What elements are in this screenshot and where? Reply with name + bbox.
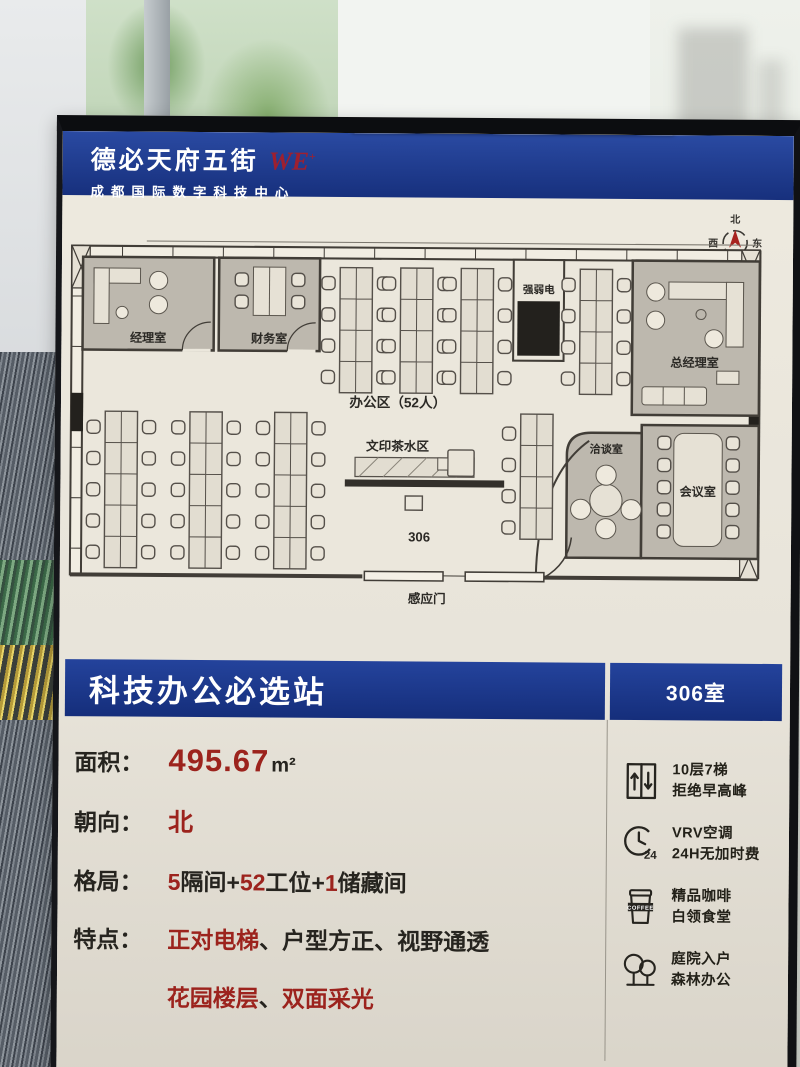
talk-room-label: 洽谈室 (590, 442, 623, 456)
utility-room-label: 强弱电 (523, 283, 555, 296)
banner-title: 科技办公必选站 (89, 665, 327, 712)
area-row: 面积： 495.67 m² (74, 742, 602, 782)
brand-name: 德必天府五街 (91, 140, 259, 177)
floorplan-area: 北 东 南 西 (59, 195, 793, 664)
area-value: 495.67 (168, 743, 269, 780)
features-label: 特点： (73, 920, 167, 955)
facing-value: 北 (168, 803, 193, 839)
manager-room-label: 经理室 (130, 330, 166, 345)
clock-24-icon: 24 (618, 823, 664, 865)
amenity-hvac: 24 VRV空调 24H无加时费 (618, 823, 789, 866)
title-banner: 科技办公必选站 306室 (65, 659, 782, 721)
amenity-text: 庭院入户 森林办公 (671, 949, 731, 991)
amenity-coffee: COFFEE 精品咖啡 白领食堂 (617, 886, 788, 929)
layout-label: 格局： (74, 862, 168, 897)
amenity-elevator: 10层7梯 拒绝早高峰 (618, 760, 789, 803)
amenity-line1: VRV空调 (672, 825, 733, 841)
features-row: 特点： 正对电梯、户型方正、视野通透 (73, 920, 601, 958)
print-tea-label: 文印茶水区 (366, 438, 429, 453)
amenity-line2: 24H无加时费 (672, 846, 760, 863)
amenity-line1: 庭院入户 (671, 951, 731, 967)
compass-north-label: 北 (730, 213, 740, 226)
poster-board: 德必天府五街 WE+ 成都国际数字科技中心 北 东 南 西 (50, 115, 800, 1067)
photo-scene: 德必天府五街 WE+ 成都国际数字科技中心 北 东 南 西 (0, 0, 800, 1067)
banner-room-number: 306室 (666, 677, 726, 707)
sensor-door-label: 感应门 (408, 591, 446, 606)
coffee-icon: COFFEE (617, 886, 663, 928)
amenity-text: 精品咖啡 白领食堂 (671, 886, 731, 928)
clock-24-badge: 24 (644, 850, 657, 862)
trees-icon (617, 949, 663, 991)
office-area-label: 办公区（52人） (349, 394, 446, 411)
amenity-line2: 拒绝早高峰 (672, 783, 747, 800)
coffee-badge: COFFEE (627, 906, 654, 912)
floorplan-drawing: 经理室 财务室 强弱电 (63, 239, 772, 624)
amenity-garden: 庭院入户 森林办公 (617, 949, 788, 992)
office-carpet-yellow-stripe (0, 645, 55, 720)
amenity-text: VRV空调 24H无加时费 (672, 823, 760, 866)
office-carpet-green-stripe (0, 560, 58, 645)
brand-row: 德必天府五街 WE+ (91, 140, 794, 181)
amenities-list: 10层7梯 拒绝早高峰 24 VRV (601, 746, 790, 1041)
elevator-icon (618, 760, 664, 802)
features-line2: 花园楼层、双面采光 (167, 979, 374, 1014)
poster-header: 德必天府五街 WE+ 成都国际数字科技中心 (62, 131, 793, 200)
amenity-line2: 森林办公 (671, 972, 731, 988)
features-line1: 正对电梯、户型方正、视野通透 (167, 921, 489, 957)
banner-room-box: 306室 (610, 663, 782, 721)
layout-row: 格局： 5隔间+52工位+1储藏间 (74, 862, 602, 900)
frosted-glass-panel (338, 0, 652, 133)
details-list: 面积： 495.67 m² 朝向： 北 格局： 5隔间+52工位+1储藏间 特点… (57, 742, 603, 1040)
details-section: 面积： 495.67 m² 朝向： 北 格局： 5隔间+52工位+1储藏间 特点… (57, 716, 790, 1041)
meeting-room-label: 会议室 (680, 484, 716, 499)
room-number-label: 306 (408, 529, 430, 544)
banner-main: 科技办公必选站 (65, 659, 605, 720)
finance-room-label: 财务室 (250, 331, 287, 346)
layout-value: 5隔间+52工位+1储藏间 (168, 863, 407, 899)
amenity-text: 10层7梯 拒绝早高峰 (672, 760, 747, 803)
gm-room-label: 总经理室 (670, 355, 718, 370)
amenity-line1: 10层7梯 (672, 762, 728, 778)
poster: 德必天府五街 WE+ 成都国际数字科技中心 北 东 南 西 (56, 131, 794, 1067)
features-row2: 花园楼层、双面采光 (167, 979, 601, 1016)
amenity-line1: 精品咖啡 (672, 888, 732, 904)
facing-label: 朝向： (74, 803, 168, 838)
amenity-line2: 白领食堂 (671, 909, 731, 925)
brand-we-logo: WE+ (269, 146, 316, 176)
area-unit: m² (271, 755, 296, 778)
facing-row: 朝向： 北 (74, 802, 602, 842)
area-label: 面积： (74, 743, 168, 778)
